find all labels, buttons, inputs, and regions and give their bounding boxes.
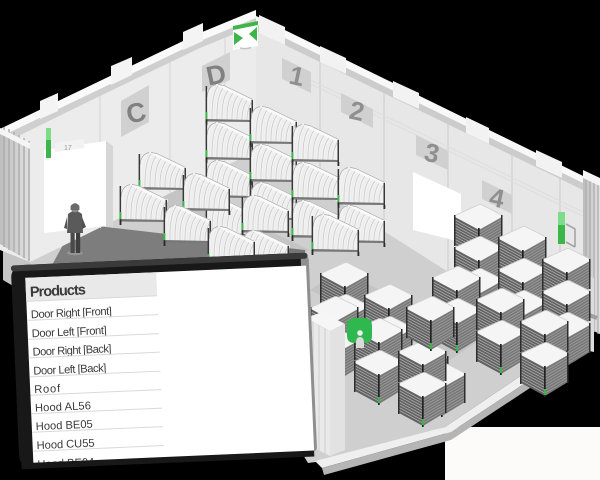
- svg-text:17: 17: [64, 145, 72, 152]
- svg-text:Products: Products: [30, 282, 87, 300]
